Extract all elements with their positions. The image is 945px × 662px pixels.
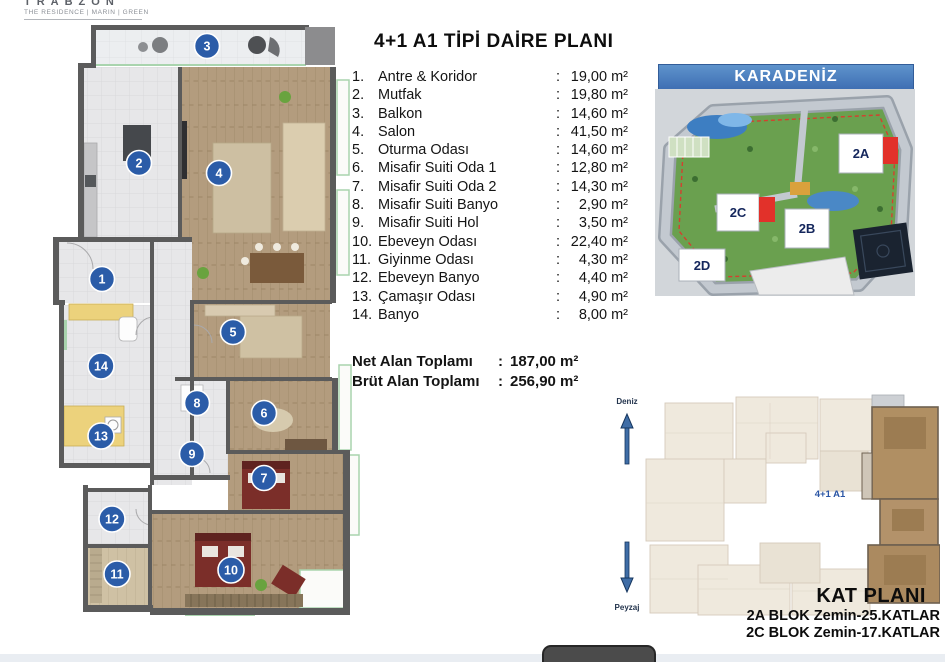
- floor-plan-drawing: 1 2 3 4 5 6 7 8 9 10 11 12 13 14: [45, 25, 375, 625]
- block-2a-label: 2A: [853, 146, 870, 161]
- block-2c-floors: 2C BLOK Zemin-17.KATLAR: [650, 625, 940, 642]
- sport-court: [853, 222, 913, 279]
- svg-text:13: 13: [94, 430, 108, 444]
- room-row: 3.Balkon:14,60 m²: [352, 105, 630, 123]
- svg-text:10: 10: [224, 564, 238, 578]
- brand-logo: TRABZON THE RESIDENCE | MARIN | GREEN: [24, 0, 154, 20]
- room-marker: 5: [221, 320, 246, 345]
- room-row: 8.Misafir Suiti Banyo:2,90 m²: [352, 196, 630, 214]
- room-row: 10.Ebeveyn Odası:22,40 m²: [352, 233, 630, 251]
- faded-units: [646, 397, 872, 615]
- room-marker: 9: [180, 442, 205, 467]
- room-marker: 8: [185, 391, 210, 416]
- sea-label: Deniz: [610, 397, 644, 406]
- room-list: 1.Antre & Koridor:19,00 m² 2.Mutfak:19,8…: [352, 68, 630, 324]
- room-row: 13.Çamaşır Odası:4,90 m²: [352, 288, 630, 306]
- room-marker: 10: [218, 557, 244, 583]
- room-row: 7.Misafir Suiti Oda 2:14,30 m²: [352, 178, 630, 196]
- room-marker: 1: [90, 267, 115, 292]
- floor-key-captions: KAT PLANI 2A BLOK Zemin-25.KATLAR 2C BLO…: [650, 585, 940, 642]
- block-2a-highlight: [883, 137, 898, 164]
- svg-text:9: 9: [189, 448, 196, 462]
- page-title: 4+1 A1 TİPİ DAİRE PLANI: [374, 31, 634, 53]
- area-totals: Net Alan Toplamı:187,00 m² Brüt Alan Top…: [352, 352, 578, 391]
- up-arrow-icon: [610, 406, 644, 468]
- block-2a-floors: 2A BLOK Zemin-25.KATLAR: [650, 608, 940, 625]
- down-arrow-icon: [610, 540, 644, 598]
- svg-text:6: 6: [261, 407, 268, 421]
- room-marker: 14: [88, 353, 114, 379]
- room-marker: 12: [99, 506, 125, 532]
- unit-type-label: 4+1 A1: [815, 489, 846, 500]
- brand-name: TRABZON: [24, 0, 154, 7]
- room-row: 2.Mutfak:19,80 m²: [352, 86, 630, 104]
- site-plan-map: 2A 2C 2B 2D: [655, 89, 915, 296]
- room-marker: 13: [88, 423, 114, 449]
- room-row: 14.Banyo:8,00 m²: [352, 306, 630, 324]
- brand-tagline: THE RESIDENCE | MARIN | GREEN: [24, 9, 142, 20]
- site-plan-drawing: 2A 2C 2B 2D: [655, 89, 915, 296]
- svg-text:4: 4: [216, 167, 223, 181]
- svg-text:14: 14: [94, 360, 108, 374]
- block-2c-highlight: [759, 197, 775, 222]
- apartment-floor-plan: 1 2 3 4 5 6 7 8 9 10 11 12 13 14: [45, 25, 375, 625]
- page-bottom-strip: [0, 654, 945, 662]
- block-2c-label: 2C: [730, 205, 747, 220]
- room-row: 12.Ebeveyn Banyo:4,40 m²: [352, 269, 630, 287]
- svg-text:11: 11: [110, 568, 123, 582]
- sea-direction: Deniz: [610, 397, 644, 473]
- playground: [790, 182, 810, 195]
- room-marker: 3: [195, 34, 220, 59]
- room-marker: 2: [127, 151, 152, 176]
- room-row: 11.Giyinme Odası:4,30 m²: [352, 251, 630, 269]
- highlighted-unit: [862, 395, 940, 603]
- kat-plani-title: KAT PLANI: [650, 585, 940, 608]
- room-marker: 4: [207, 161, 232, 186]
- svg-text:8: 8: [194, 397, 201, 411]
- pond: [807, 191, 859, 211]
- bottom-cropped-button[interactable]: [542, 645, 656, 662]
- svg-text:5: 5: [230, 326, 237, 340]
- svg-text:12: 12: [105, 513, 119, 527]
- svg-text:7: 7: [261, 472, 268, 486]
- svg-text:2: 2: [136, 157, 143, 171]
- room-marker: 7: [252, 466, 277, 491]
- block-2d-label: 2D: [694, 258, 711, 273]
- net-total: Net Alan Toplamı:187,00 m²: [352, 352, 578, 372]
- parking: [669, 137, 709, 157]
- room-row: 1.Antre & Koridor:19,00 m²: [352, 68, 630, 86]
- room-row: 6.Misafir Suiti Oda 1:12,80 m²: [352, 159, 630, 177]
- room-row: 5.Oturma Odası:14,60 m²: [352, 141, 630, 159]
- landscape-label: Peyzaj: [610, 603, 644, 612]
- block-2b-label: 2B: [799, 221, 816, 236]
- landscape-direction: Peyzaj: [610, 540, 644, 612]
- svg-text:3: 3: [204, 40, 211, 54]
- room-marker: 6: [252, 401, 277, 426]
- room-row: 4.Salon:41,50 m²: [352, 123, 630, 141]
- room-marker: 11: [104, 561, 130, 587]
- site-plan-header: KARADENİZ: [658, 64, 914, 90]
- brut-total: Brüt Alan Toplamı:256,90 m²: [352, 372, 578, 392]
- svg-text:1: 1: [99, 273, 106, 287]
- brochure-page: TRABZON THE RESIDENCE | MARIN | GREEN 4+…: [0, 0, 945, 662]
- room-row: 9.Misafir Suiti Hol:3,50 m²: [352, 214, 630, 232]
